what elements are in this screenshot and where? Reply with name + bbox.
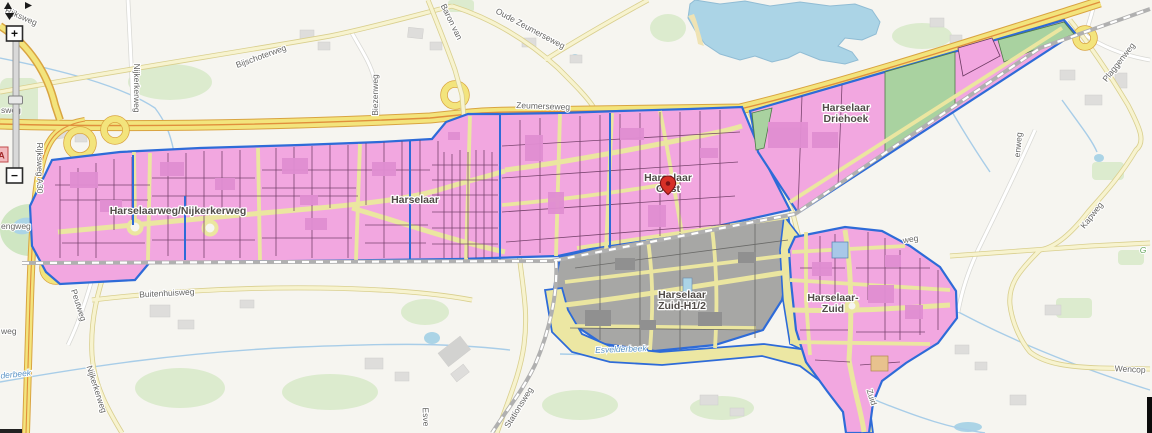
zuid-blue-parcel <box>832 242 848 258</box>
road-label-nijkerkerweg-north: Nijkerkerweg <box>132 63 142 112</box>
zoom-in-label: + <box>11 27 18 41</box>
bottom-edge-strip <box>0 429 22 433</box>
pin-dot-icon <box>666 181 671 186</box>
road-label-engweg-fragment: engweg <box>1 221 31 231</box>
road-label-weg-left-fragment: weg <box>0 326 17 336</box>
area-label-driehoek-line2: Driehoek <box>824 113 869 125</box>
road-label-zeumerseweg: Zeumerseweg <box>516 100 570 112</box>
road-label-esve-fragment: Esve <box>421 407 432 427</box>
area-label-harselaar: Harselaar <box>391 194 439 206</box>
marker-a-label: A <box>0 151 5 161</box>
area-label-harselaar-zuid-line2: Zuid <box>822 303 844 315</box>
zoom-slider-handle[interactable] <box>9 96 23 104</box>
zoom-out-label: − <box>11 169 18 183</box>
right-edge-strip <box>1147 397 1152 433</box>
zoom-slider-track[interactable] <box>13 30 19 180</box>
label-g-fragment: G <box>1140 245 1147 255</box>
map-viewport[interactable]: Rijksweg Nijkerkerweg Bijschoterweg Biez… <box>0 0 1152 433</box>
water-label-esvelderbeek: Esvelderbeek <box>595 343 648 355</box>
zuid-tan-parcel <box>871 356 888 371</box>
area-label-harselaarweg-nijkerkerweg: Harselaarweg/Nijkerkerweg <box>110 205 247 217</box>
road-label-biezenweg: Biezenweg <box>370 74 380 116</box>
zoom-in-button[interactable]: + <box>7 26 23 41</box>
area-label-zuid-h12-line2: Zuid-H1/2 <box>658 300 706 312</box>
road-label-wencop: Wencop <box>1114 363 1146 375</box>
zoom-out-button[interactable]: − <box>7 168 23 183</box>
marker-a-badge[interactable]: A <box>0 147 8 162</box>
road-label-rijksweg-a30: Rijksweg A30 <box>35 142 45 193</box>
